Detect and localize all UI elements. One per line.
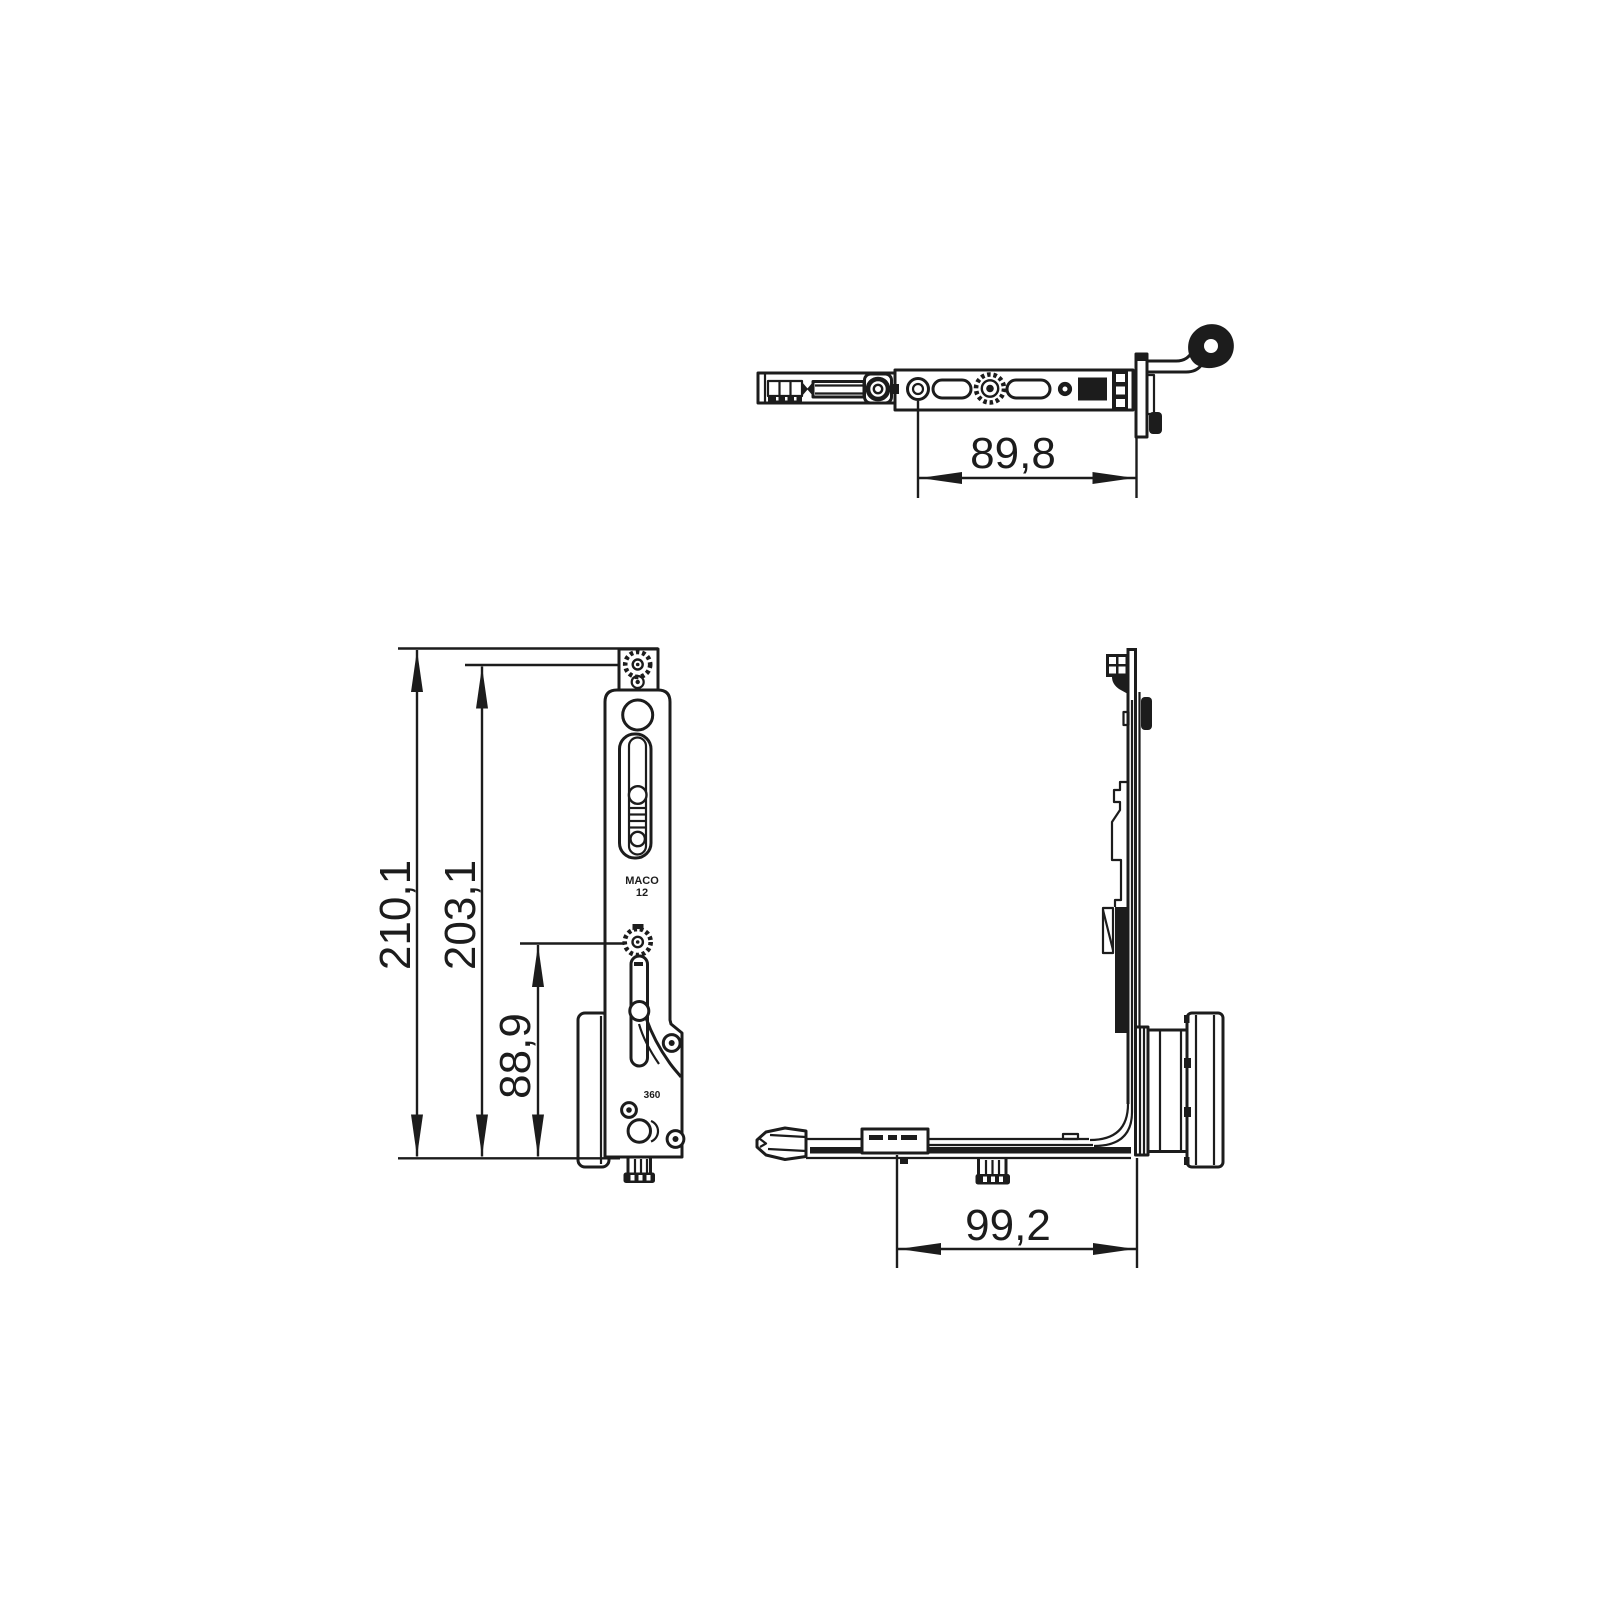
rivet-inner — [913, 384, 923, 394]
hinge-plate — [605, 690, 682, 1157]
rack-slot — [1116, 399, 1125, 407]
latch-block — [1078, 378, 1107, 401]
pivot-bearing-center — [874, 385, 882, 393]
bracket-slot — [1109, 657, 1116, 664]
technical-drawing: 89,8 MACO 12 — [0, 0, 1600, 1600]
arm-block-dash — [869, 1135, 883, 1140]
adjuster-center — [636, 940, 640, 944]
dimension-label-99-2: 99,2 — [965, 1201, 1051, 1250]
dimension-label-88-9: 88,9 — [491, 1013, 540, 1099]
pin-base-slit — [647, 1175, 651, 1181]
brand-marking: MACO — [625, 875, 659, 887]
rack-slot — [1116, 374, 1125, 382]
slot-left — [933, 380, 971, 398]
size-marking: 12 — [636, 887, 648, 899]
arrowhead-left — [899, 1243, 941, 1255]
arm-block-dash — [888, 1135, 897, 1140]
pivot-arm-bottom-edge — [1147, 364, 1202, 372]
sash-profile-bar — [1115, 907, 1128, 1033]
lever-pivot — [630, 1002, 649, 1021]
arrowhead-right — [1093, 1243, 1135, 1255]
side-pin-slit — [983, 1177, 987, 1183]
arm-band — [810, 1147, 1131, 1154]
arrowhead-up — [476, 667, 488, 709]
arrowhead-down — [532, 1115, 544, 1157]
rivet-outer — [908, 379, 929, 400]
end-plate-cap — [1136, 354, 1147, 361]
drum-notch — [1184, 1107, 1191, 1117]
top-view: 89,8 — [758, 324, 1234, 498]
end-plate — [1136, 354, 1147, 437]
slot-lower-pin — [631, 832, 645, 846]
arrowhead-left — [920, 472, 962, 484]
side-top-lug — [1141, 697, 1152, 730]
bracket-slot — [1109, 667, 1116, 674]
arm-bump — [1063, 1134, 1078, 1139]
arm-block-dash — [901, 1135, 917, 1140]
slider-window — [768, 381, 802, 396]
slot-right — [1007, 380, 1050, 398]
side-bracket-taper — [1112, 677, 1128, 694]
pivot-head-hole — [1204, 339, 1218, 353]
model-marking: 360 — [644, 1090, 661, 1101]
small-rivet — [1060, 384, 1070, 394]
screw-hole-dot — [626, 1107, 632, 1113]
arrowhead-down — [476, 1115, 488, 1157]
corner-arc-outer — [1090, 1104, 1128, 1140]
side-small-tab — [1124, 712, 1129, 725]
dimension-top-width: 89,8 — [918, 401, 1137, 498]
sash-profile — [1112, 782, 1128, 907]
screw-hole-dot — [673, 1136, 679, 1142]
dimension-label-203-1: 203,1 — [436, 860, 485, 970]
side-pin-slit — [991, 1177, 995, 1183]
arrowhead-down — [411, 1115, 423, 1157]
dimension-side-depth: 99,2 — [897, 1155, 1137, 1268]
arrowhead-right — [1093, 472, 1135, 484]
drawing-svg: 89,8 MACO 12 — [0, 0, 1600, 1600]
end-plate-foot — [1149, 412, 1162, 434]
screw-hole-dot — [669, 1040, 675, 1046]
end-plate-layer — [1147, 375, 1154, 414]
top-screw-dot — [636, 680, 640, 684]
top-pivot-center — [636, 663, 640, 667]
arm-block — [862, 1129, 928, 1153]
link-rod — [813, 382, 864, 398]
stay-bar-nub — [892, 384, 899, 394]
side-view: 99,2 — [757, 648, 1223, 1268]
side-pin-slit — [999, 1177, 1003, 1183]
lower-slot-mark — [634, 962, 643, 966]
pin-base-slit — [639, 1175, 643, 1181]
arrowhead-up — [532, 945, 544, 987]
side-clip-diagonal — [1103, 910, 1113, 950]
drum-step — [1184, 1015, 1190, 1023]
bracket-slot — [1119, 667, 1126, 674]
hatch-tick — [794, 397, 797, 401]
adjustment-gear-center — [986, 385, 994, 393]
arm-stop-square — [900, 1158, 908, 1164]
drum-step — [1184, 1157, 1190, 1165]
drum-flange — [1136, 1027, 1149, 1155]
dimension-label-89-8: 89,8 — [970, 429, 1056, 478]
pivot-arm-top-edge — [1147, 351, 1193, 361]
drum-notch — [1184, 1058, 1191, 1068]
front-view: MACO 12 360 — [371, 649, 684, 1184]
hatch-tick — [785, 397, 788, 401]
rack-slot — [1116, 387, 1125, 395]
arrowhead-up — [411, 650, 423, 692]
dimension-label-210-1: 210,1 — [371, 860, 420, 970]
hatch-tick — [776, 397, 779, 401]
drum-cap — [1187, 1013, 1223, 1167]
slot-slider — [629, 786, 647, 804]
bracket-slot — [1119, 657, 1126, 664]
pin-base-slit — [631, 1175, 635, 1181]
